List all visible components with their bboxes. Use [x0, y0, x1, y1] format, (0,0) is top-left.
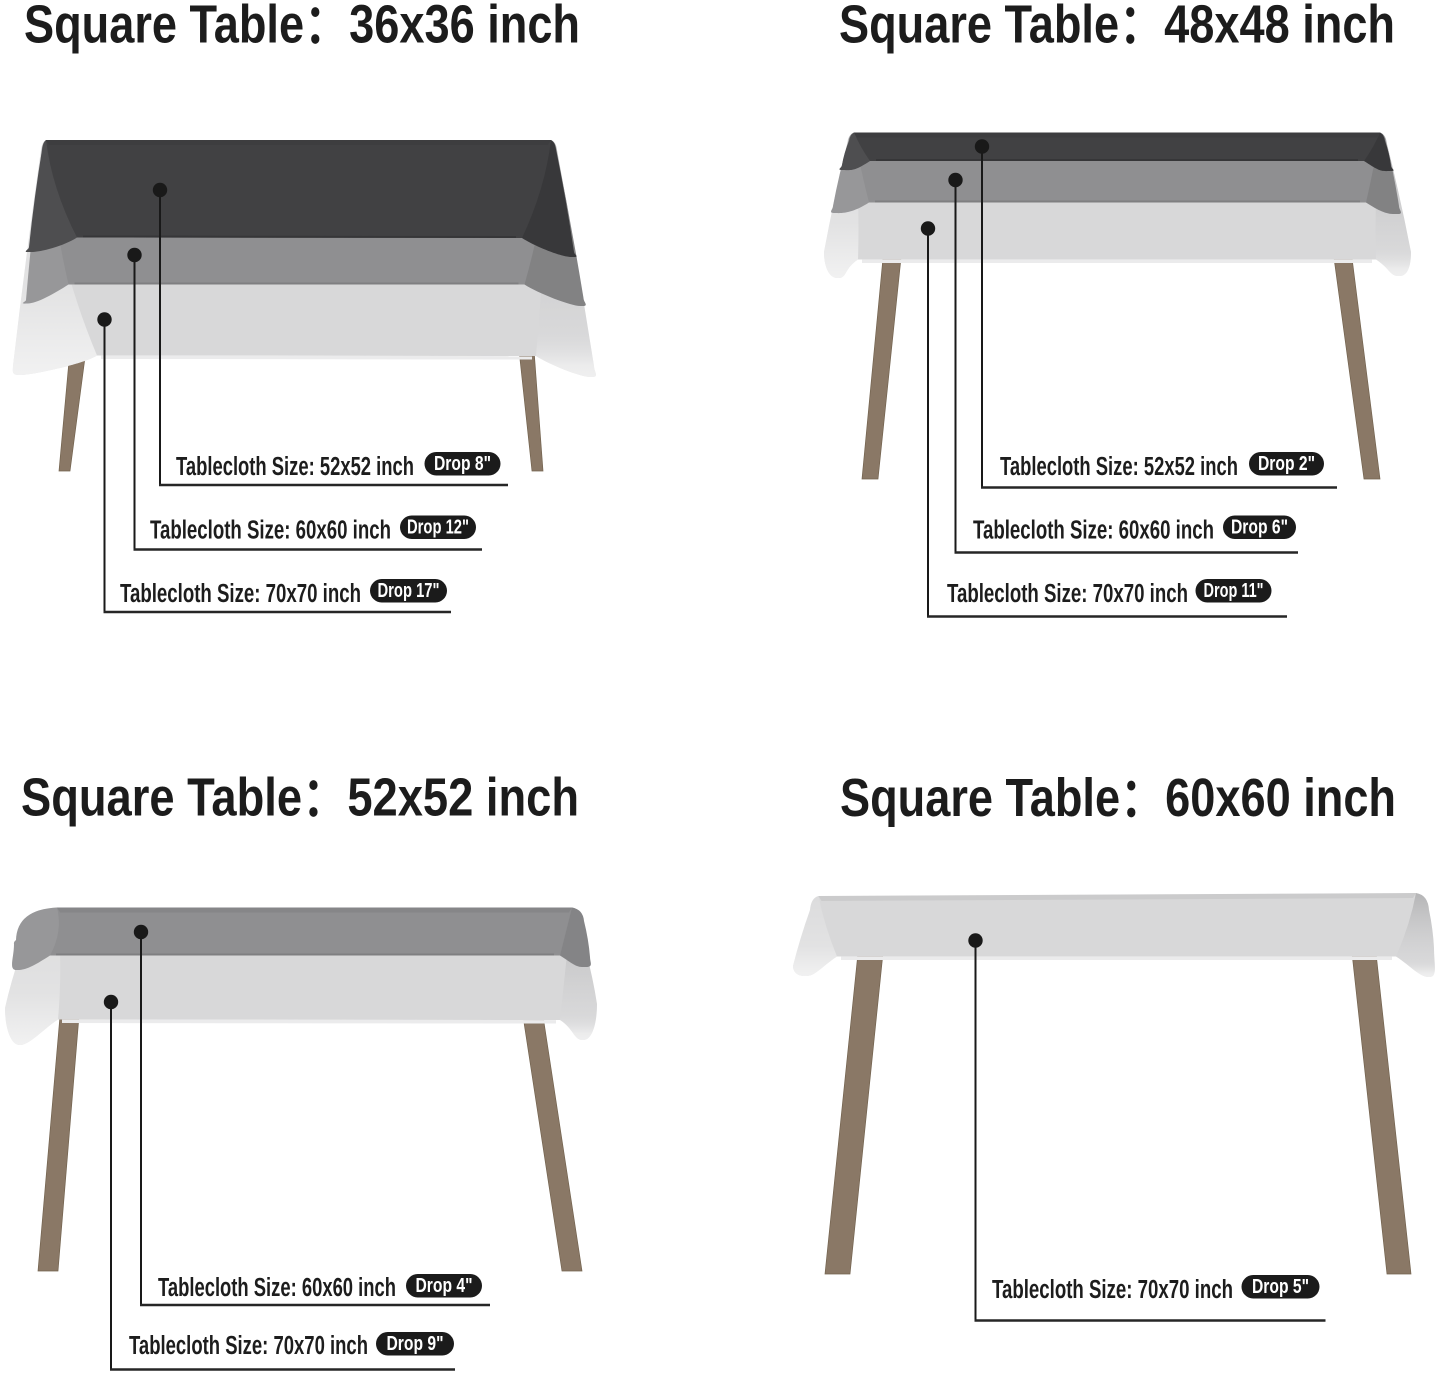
svg-text:Drop 5": Drop 5" — [1252, 1275, 1309, 1298]
svg-text:Tablecloth Size: 52x52 inch: Tablecloth Size: 52x52 inch — [1000, 453, 1238, 481]
svg-text:Tablecloth Size: 70x70 inch: Tablecloth Size: 70x70 inch — [947, 580, 1188, 608]
svg-text:Square Table：60x60 inch: Square Table：60x60 inch — [840, 768, 1396, 828]
svg-text:Tablecloth Size: 70x70 inch: Tablecloth Size: 70x70 inch — [129, 1332, 368, 1360]
svg-text:Square Table：52x52 inch: Square Table：52x52 inch — [21, 768, 579, 828]
svg-text:Drop 6": Drop 6" — [1231, 516, 1288, 539]
svg-text:Tablecloth Size: 70x70 inch: Tablecloth Size: 70x70 inch — [992, 1276, 1233, 1304]
svg-text:Drop 8": Drop 8" — [434, 452, 491, 475]
svg-text:Tablecloth Size: 52x52 inch: Tablecloth Size: 52x52 inch — [176, 453, 414, 481]
svg-text:Tablecloth Size: 60x60 inch: Tablecloth Size: 60x60 inch — [150, 517, 391, 545]
svg-text:Tablecloth Size: 60x60 inch: Tablecloth Size: 60x60 inch — [158, 1274, 396, 1302]
svg-text:Tablecloth Size: 70x70 inch: Tablecloth Size: 70x70 inch — [120, 580, 361, 608]
svg-text:Tablecloth Size: 60x60 inch: Tablecloth Size: 60x60 inch — [973, 517, 1214, 545]
svg-text:Drop 2": Drop 2" — [1258, 452, 1315, 475]
svg-text:Drop 4": Drop 4" — [416, 1274, 473, 1297]
svg-text:Drop 11": Drop 11" — [1204, 579, 1264, 602]
svg-text:Drop 17": Drop 17" — [378, 579, 440, 602]
svg-text:Square Table：48x48 inch: Square Table：48x48 inch — [839, 0, 1395, 55]
svg-text:Drop 12": Drop 12" — [407, 516, 469, 539]
svg-text:Drop 9": Drop 9" — [387, 1332, 444, 1355]
svg-text:Square Table：36x36 inch: Square Table：36x36 inch — [24, 0, 580, 55]
